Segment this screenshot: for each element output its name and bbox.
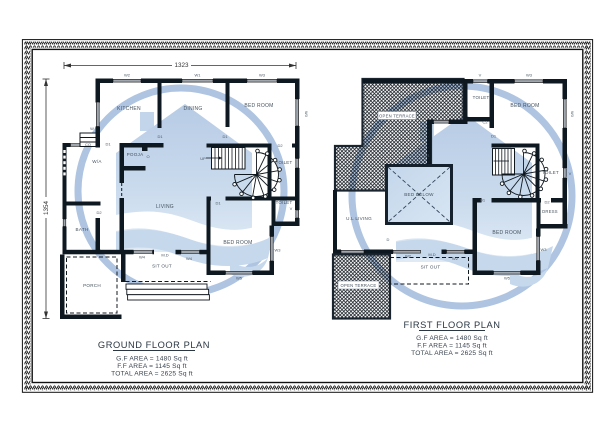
svg-text:BED ROOM: BED ROOM [244,103,273,109]
svg-text:TOTAL AREA = 2625 Sq ft: TOTAL AREA = 2625 Sq ft [411,350,493,357]
svg-text:D1: D1 [480,198,486,203]
svg-text:W4: W4 [139,255,146,260]
svg-text:KITCHEN: KITCHEN [117,106,141,112]
svg-text:F.F AREA = 1145 Sq ft: F.F AREA = 1145 Sq ft [417,343,487,350]
svg-text:W5: W5 [504,276,511,281]
svg-text:G.F AREA = 1480 Sq ft: G.F AREA = 1480 Sq ft [116,356,188,363]
svg-text:D1: D1 [491,134,497,139]
svg-text:W: W [90,126,94,131]
svg-text:D1: D1 [424,153,430,158]
svg-text:W3: W3 [304,111,308,117]
svg-text:W3: W3 [541,247,548,252]
svg-text:W2: W2 [124,73,131,78]
svg-text:OPEN TERRACE: OPEN TERRACE [341,283,377,288]
svg-text:CO: CO [85,142,91,147]
svg-text:V: V [479,73,482,78]
svg-text:F.F AREA = 1145 Sq ft: F.F AREA = 1145 Sq ft [117,363,187,370]
svg-text:O: O [146,154,149,159]
svg-text:BED ROOM: BED ROOM [510,103,539,109]
svg-text:W/A: W/A [92,159,102,164]
svg-text:DRESS: DRESS [542,209,558,214]
svg-text:W2: W2 [452,256,459,261]
svg-text:W1: W1 [195,73,202,78]
svg-text:W3: W3 [275,248,282,253]
svg-text:BED ROOM: BED ROOM [223,240,252,246]
svg-text:BATH: BATH [76,227,89,232]
svg-text:C2: C2 [482,120,488,125]
svg-text:OPEN TERRACE: OPEN TERRACE [379,114,415,119]
svg-text:BED BELOW: BED BELOW [404,192,434,197]
svg-text:D1: D1 [157,134,163,139]
svg-text:D2: D2 [96,210,102,215]
svg-text:SIT OUT: SIT OUT [421,265,441,270]
svg-text:SIT OUT: SIT OUT [152,264,172,269]
svg-text:D1: D1 [105,142,111,147]
svg-text:1323: 1323 [174,62,189,69]
svg-text:W3: W3 [570,111,574,117]
svg-text:DINING: DINING [184,106,203,112]
svg-text:LIVING: LIVING [156,204,174,210]
svg-text:D: D [387,237,390,242]
svg-text:TOILET: TOILET [276,200,293,205]
svg-text:D2: D2 [544,200,550,205]
svg-text:W5: W5 [236,276,243,281]
svg-text:POOJA: POOJA [127,152,145,157]
svg-text:TOTAL AREA = 2625 Sq ft: TOTAL AREA = 2625 Sq ft [111,371,193,378]
svg-text:BED ROOM: BED ROOM [492,230,521,236]
svg-text:V: V [569,171,572,176]
svg-text:FIRST FLOOR PLAN: FIRST FLOOR PLAN [404,320,501,330]
svg-text:W3: W3 [526,73,533,78]
svg-text:D1: D1 [222,134,228,139]
svg-text:GROUND FLOOR PLAN: GROUND FLOOR PLAN [98,340,210,350]
svg-text:U.L LIVING: U.L LIVING [346,216,372,221]
svg-text:TOILET: TOILET [542,170,559,175]
svg-text:TOILET: TOILET [473,95,490,100]
svg-text:UP: UP [200,156,206,161]
svg-text:G.F AREA = 1480 Sq ft: G.F AREA = 1480 Sq ft [416,335,488,342]
svg-text:M.D: M.D [428,252,435,257]
svg-text:W4: W4 [186,256,193,261]
svg-text:D1: D1 [215,201,221,206]
svg-text:1354: 1354 [43,201,50,216]
svg-text:D2: D2 [277,143,283,148]
svg-text:V: V [290,206,293,211]
svg-text:M.D: M.D [161,253,168,258]
svg-text:W2: W2 [405,254,412,259]
svg-text:W3: W3 [259,73,266,78]
svg-text:PORCH: PORCH [83,283,101,288]
svg-text:TOILET: TOILET [276,160,293,165]
